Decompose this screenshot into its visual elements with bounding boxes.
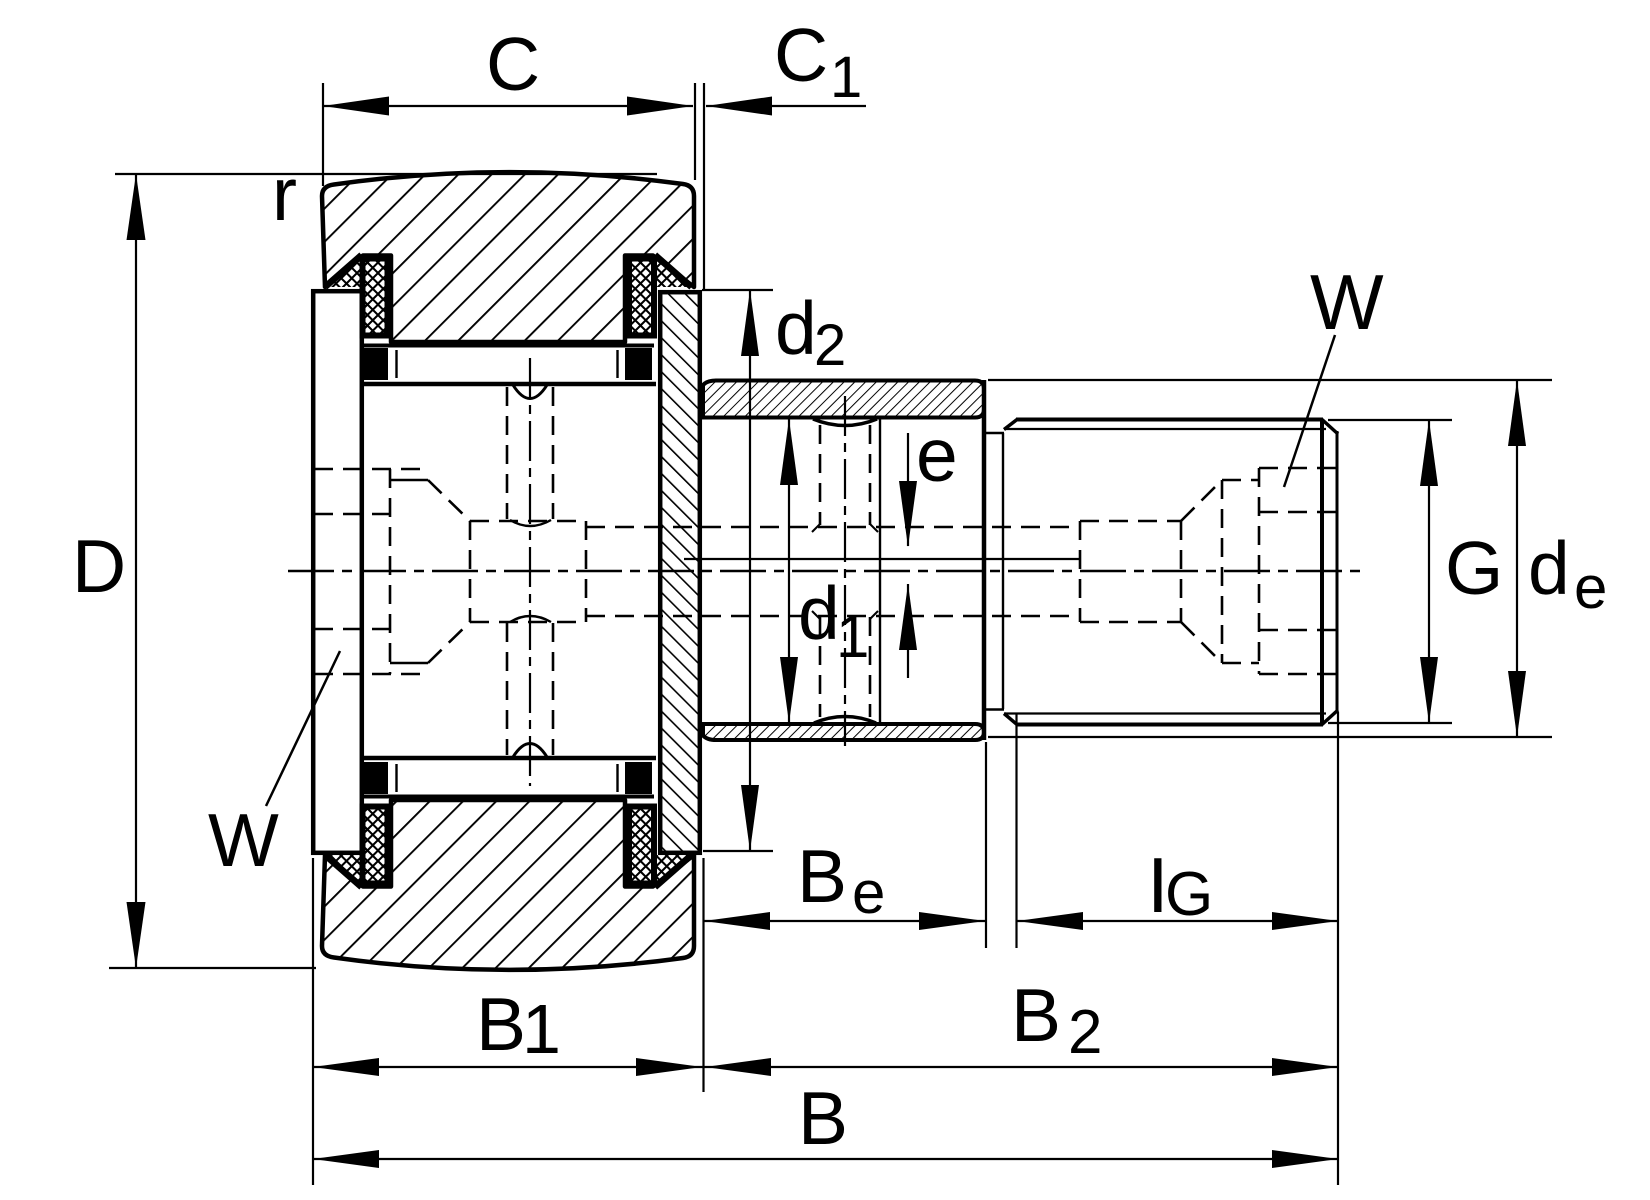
svg-text:d: d: [775, 286, 817, 370]
svg-text:G: G: [1165, 860, 1213, 929]
svg-text:W: W: [1310, 258, 1384, 346]
svg-text:C: C: [486, 22, 540, 106]
svg-text:e: e: [852, 859, 885, 926]
svg-text:1: 1: [836, 603, 869, 670]
svg-text:2: 2: [1068, 998, 1102, 1067]
svg-text:1: 1: [522, 990, 561, 1068]
svg-text:1: 1: [830, 45, 862, 110]
svg-text:W: W: [208, 798, 279, 882]
svg-text:d: d: [1528, 526, 1570, 610]
svg-text:d: d: [798, 571, 840, 655]
svg-text:B: B: [797, 834, 847, 918]
svg-text:e: e: [916, 413, 958, 497]
svg-text:B: B: [476, 982, 526, 1066]
svg-text:r: r: [272, 152, 297, 236]
svg-text:B: B: [1011, 973, 1061, 1057]
svg-text:D: D: [72, 524, 126, 608]
svg-text:2: 2: [814, 313, 846, 378]
svg-text:C: C: [774, 13, 828, 97]
svg-text:e: e: [1574, 554, 1607, 621]
svg-text:B: B: [798, 1076, 848, 1160]
svg-text:G: G: [1445, 526, 1503, 610]
